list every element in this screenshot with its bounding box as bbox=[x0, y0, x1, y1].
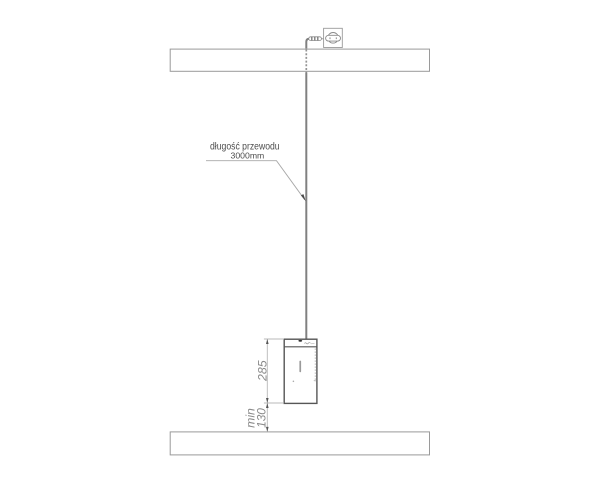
svg-text:3000mm: 3000mm bbox=[231, 151, 265, 161]
svg-text:285: 285 bbox=[258, 360, 270, 382]
svg-text:130: 130 bbox=[256, 408, 268, 428]
